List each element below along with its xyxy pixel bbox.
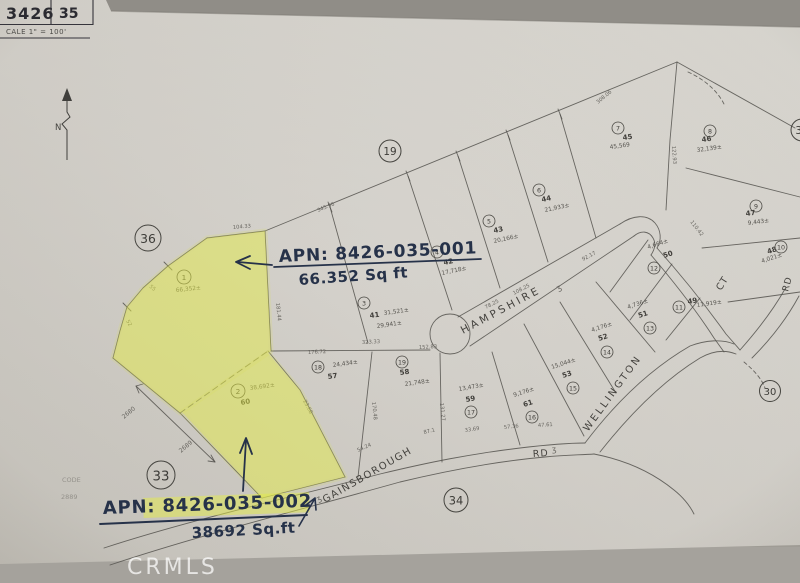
dimension-label: 122.93 [670,146,677,165]
scanned-plat-map-document: N 3426 35 CALE 1" = 100' CODE 2889 HAMPS… [0,0,800,583]
parcel-number: 18 [314,365,322,372]
north-label: N [55,123,61,133]
map-book-number: 3426 [6,4,55,23]
map-page-number: 35 [59,6,78,22]
lot-number-label: 58 [399,368,410,377]
parcel-number: 8 [708,129,712,136]
parcel-number: 17 [467,410,475,417]
faint-code-line2: 2889 [61,493,78,501]
parcel-number: 12 [650,266,658,273]
parcel-number: 11 [675,305,683,312]
parcel-number: 9 [754,204,758,211]
lot-number-label: 59 [465,394,476,404]
parcel-number: 3 [362,301,366,308]
adjacent-sheet-number: 36 [140,232,156,246]
parcel-number: 7 [616,126,620,133]
adjacent-sheet-number: 35 [795,125,800,137]
crmls-watermark: CRMLS [127,555,218,580]
parcel-number: 6 [537,188,541,195]
lot-number-label: 57 [327,372,338,381]
street-label-rd: RD [532,448,549,460]
parcel-number: 5 [487,219,491,226]
parcel-number: 16 [528,415,536,422]
parcel-number: 10 [777,245,785,252]
dimension-label: 176.72 [308,349,326,356]
dimension-label: 323.33 [362,339,380,346]
parcel-number: 19 [398,360,406,367]
parcel-number: 13 [646,326,654,333]
map-scale-label: CALE 1" = 100' [6,28,67,36]
parcel-number: 14 [603,350,611,357]
adjacent-sheet-number: 33 [153,469,170,484]
lot-number-label: 41 [369,311,380,320]
lot-number-label: 45 [622,133,633,142]
paper-vignette [0,0,800,564]
dimension-label: 152.83 [419,344,437,351]
adjacent-sheet-number: 34 [449,494,464,508]
adjacent-sheet-number: 19 [383,146,396,158]
dimension-label: 47.61 [538,422,553,429]
parcel-number: 15 [569,386,577,393]
adjacent-sheet-number: 30 [764,387,777,398]
faint-code-line1: CODE [62,476,81,484]
